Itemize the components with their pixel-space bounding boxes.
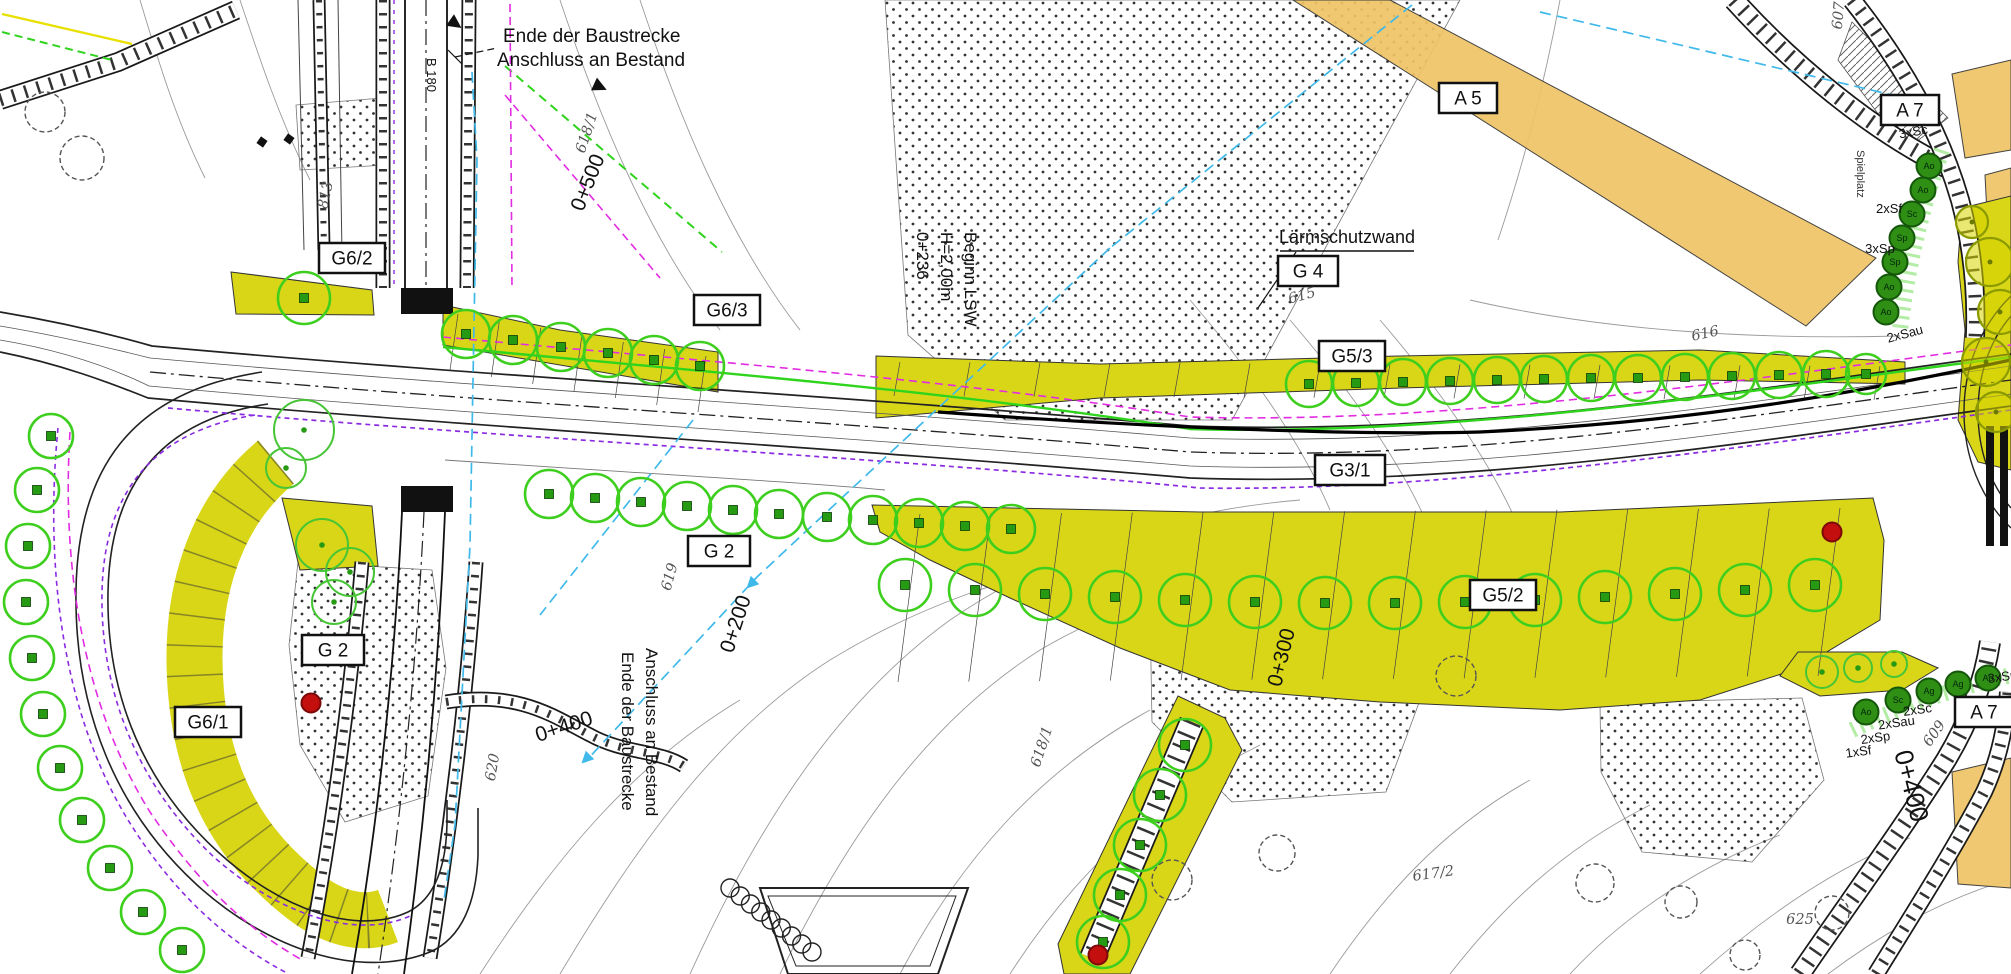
tree-square [1251, 598, 1260, 607]
tree-square [775, 510, 784, 519]
tree-square [24, 542, 33, 551]
label-text: A 5 [1454, 89, 1481, 110]
tree-square [971, 586, 980, 595]
site-plan: AoAoScSpSpAoAoAoScAgAgAo G6/2G6/3G 4G5/3… [0, 0, 2011, 974]
label-text: G6/3 [706, 301, 747, 322]
tree-square [1391, 599, 1400, 608]
label-text: A 7 [1896, 101, 1923, 122]
existing-shrub-symbol [1962, 338, 2010, 386]
tree-square [604, 349, 613, 358]
tree-square [1822, 370, 1831, 379]
planted-tree-tagged: Ao [1917, 154, 1942, 179]
plant-quantity-label: 3xSp [1987, 667, 2011, 686]
tree-square [509, 336, 518, 345]
tree-square [1681, 373, 1690, 382]
fenced-enclosure-inner [768, 896, 956, 966]
tree-symbol [6, 524, 50, 568]
label-text: G6/2 [331, 249, 372, 270]
plant-quantity-label: 1xSf [1844, 742, 1872, 761]
tree-center-dot [1891, 661, 1897, 667]
label-text: A 7 [1970, 703, 1997, 724]
annotation-beginn-lsw: Beginn LSW [961, 232, 980, 327]
area-label-box-g-2: G 2 [302, 635, 364, 665]
drainage-arrow [577, 751, 594, 768]
tree-species-tag: Sp [1896, 233, 1907, 243]
tree-square [1446, 377, 1455, 386]
tree-center-dot [1819, 669, 1825, 675]
planting-area [872, 498, 1884, 710]
annotation-0-236: 0+236 [913, 232, 932, 280]
tree-symbol [29, 414, 73, 458]
tree-symbol [21, 692, 65, 736]
tree-symbol [88, 846, 132, 890]
plant-quantity-label: 2xSau [1885, 322, 1925, 346]
tree-square [1540, 375, 1549, 384]
tree-square [1811, 581, 1820, 590]
parcel-number: 625 [1786, 912, 1814, 928]
tree-square [39, 710, 48, 719]
planted-tree-tagged: Ao [1877, 275, 1902, 300]
bridge-abutment [401, 486, 453, 512]
red-point-marker [302, 694, 321, 713]
tree-symbol [10, 636, 54, 680]
area-label-box-g5-2: G5/2 [1470, 580, 1536, 610]
tree-species-tag: Ao [1880, 307, 1891, 317]
tree-square [557, 343, 566, 352]
tree-square [139, 908, 148, 917]
contour-line [1470, 300, 1900, 337]
label-text: G5/3 [1331, 347, 1372, 368]
tree-symbol [160, 928, 204, 972]
existing-shrub-symbol [1956, 206, 1988, 238]
tree-symbol [525, 470, 573, 518]
label-text: G6/1 [187, 713, 228, 734]
tree-square [106, 864, 115, 873]
existing-tree-blob [1730, 940, 1760, 970]
parcel-number: 617/2 [1412, 863, 1456, 885]
tree-symbol [4, 580, 48, 624]
tree-square [729, 506, 738, 515]
contour-line [1450, 805, 1650, 974]
leader-line [448, 50, 462, 64]
tree-square [56, 764, 65, 773]
tree-species-tag: Ao [1883, 282, 1894, 292]
parcel-number: 616 [1690, 323, 1720, 344]
gravel-stipple-area [1600, 698, 1824, 862]
annotation-l-rmschutzwand: Lärmschutzwand [1279, 227, 1415, 247]
planted-tree-tagged: Ao [1874, 300, 1899, 325]
annotation-ende-der-baustrecke: Ende der Baustrecke [503, 26, 680, 47]
tree-species-tag: Ag [1952, 679, 1963, 689]
tree-square [1741, 586, 1750, 595]
planted-tree-tagged: Ao [1854, 700, 1879, 725]
tree-square [1041, 590, 1050, 599]
planted-tree-tagged: Ao [1911, 178, 1936, 203]
parcel-number: 607 [1830, 0, 1848, 30]
label-text: G 4 [1293, 262, 1324, 283]
tree-square [22, 598, 31, 607]
tree-square [961, 522, 970, 531]
tree-species-tag: Sp [1889, 257, 1900, 267]
annotation-anschluss-an-bestand: Anschluss an Bestand [642, 648, 661, 816]
area-label-box-g6-1: G6/1 [175, 707, 241, 737]
plant-quantity-label: 2xSf [1876, 201, 1902, 216]
area-label-box-a-7: A 7 [1955, 697, 2011, 727]
gravel-stipple-area [296, 98, 386, 170]
area-a-surface [1952, 60, 2011, 158]
existing-shrub-symbol [1976, 392, 2011, 432]
tree-square [300, 294, 309, 303]
parcel-number: 618/1 [1028, 724, 1056, 769]
tree-center-dot [347, 569, 353, 575]
embankment-band-fill [319, 0, 324, 250]
tree-square [823, 513, 832, 522]
planted-tree-tagged: Sc [1900, 202, 1925, 227]
tree-square [1634, 374, 1643, 383]
tree-species-tag: Ag [1923, 686, 1934, 696]
tree-symbol [709, 486, 757, 534]
shrub-center-dot [1988, 260, 1993, 265]
existing-shrub-symbol [1966, 238, 2011, 286]
tree-square [683, 502, 692, 511]
tree-square [1399, 378, 1408, 387]
tree-square [650, 356, 659, 365]
tree-symbol [803, 493, 851, 541]
tree-square [28, 654, 37, 663]
tree-symbol [663, 482, 711, 530]
tree-center-dot [319, 542, 325, 548]
tree-symbol [617, 478, 665, 526]
area-label-box-g5-3: G5/3 [1319, 341, 1385, 371]
chainage-label: 0+200 [716, 592, 756, 655]
existing-tree-blob [1259, 835, 1295, 871]
tree-center-dot [1855, 665, 1861, 671]
area-label-box-a-5: A 5 [1439, 83, 1497, 113]
shrub-center-dot [1970, 220, 1975, 225]
area-label-box-g-4: G 4 [1278, 256, 1338, 286]
plan-line [2, 14, 132, 44]
tree-symbol [60, 798, 104, 842]
contour-line [560, 560, 1100, 974]
parcel-number: 618/1 [573, 110, 601, 155]
tree-species-tag: Sc [1907, 209, 1918, 219]
tree-species-tag: Ao [1917, 185, 1928, 195]
fenced-enclosure-outer [760, 888, 968, 974]
tree-square [1156, 791, 1165, 800]
annotation-ende-der-baustrecke: Ende der Baustrecke [618, 652, 637, 811]
plant-quantity-label: 3xSp [1865, 241, 1895, 256]
tree-square [1862, 370, 1871, 379]
tree-square [462, 330, 471, 339]
tree-square [1181, 596, 1190, 605]
annotation-h-2-00m: H=2,00m [937, 232, 956, 301]
shrub-center-dot [1994, 410, 1999, 415]
red-point-marker [1823, 523, 1842, 542]
tree-square [1181, 741, 1190, 750]
existing-shrub-symbol [1978, 290, 2011, 334]
site-plan-map: AoAoScSpSpAoAoAoScAgAgAo G6/2G6/3G 4G5/3… [0, 0, 2011, 974]
shrub-center-dot [1984, 360, 1989, 365]
label-text: G5/2 [1482, 586, 1523, 607]
road-edge-line [445, 460, 885, 490]
tree-center-dot [331, 599, 337, 605]
shrub-center-dot [1998, 310, 2003, 315]
tree-center-dot [301, 427, 307, 433]
tree-square [1305, 380, 1314, 389]
parcel-number: 619 [659, 562, 682, 593]
tree-square [47, 432, 56, 441]
tree-symbol [755, 490, 803, 538]
tree-square [591, 494, 600, 503]
parcel-number: 620 [483, 752, 504, 782]
survey-point-square [256, 136, 267, 147]
tree-square [1321, 599, 1330, 608]
tree-species-tag: Ao [1923, 161, 1934, 171]
tree-square [869, 516, 878, 525]
annotation-b-180: B 180 [424, 58, 439, 92]
annotation-anschluss-an-bestand: Anschluss an Bestand [497, 50, 685, 71]
area-label-box-g6-3: G6/3 [694, 295, 760, 325]
tree-square [1007, 525, 1016, 534]
tree-square [1352, 379, 1361, 388]
tree-symbol [15, 468, 59, 512]
area-label-box-g3-1: G3/1 [1315, 455, 1385, 485]
tree-square [1136, 841, 1145, 850]
tree-square [545, 490, 554, 499]
tree-species-tag: Ao [1860, 707, 1871, 717]
tree-symbol [571, 474, 619, 522]
planted-tree-tagged: Ag [1946, 672, 1971, 697]
planting-area [1780, 652, 1938, 696]
area-label-box-a-7: A 7 [1881, 95, 1939, 125]
tree-symbol-dotted [274, 400, 334, 460]
tree-square [637, 498, 646, 507]
bridge-abutment [401, 288, 453, 314]
area-label-box-g-2: G 2 [688, 536, 750, 566]
tree-center-dot [283, 465, 289, 471]
label-text: G3/1 [1329, 461, 1370, 482]
tree-square [1728, 372, 1737, 381]
tree-square [1671, 590, 1680, 599]
existing-tree-blob [1576, 864, 1614, 902]
tree-square [78, 816, 87, 825]
chainage-label: 0+500 [566, 151, 609, 214]
plan-line [505, 66, 722, 252]
tree-square [178, 946, 187, 955]
tree-square [696, 362, 705, 371]
chainage-label: 0+400 [1888, 747, 1935, 825]
tree-square [1116, 891, 1125, 900]
bridge-abutment [2000, 426, 2008, 546]
tree-square [1587, 374, 1596, 383]
label-text: G 2 [704, 542, 735, 563]
tree-symbol [38, 746, 82, 790]
tree-symbol [121, 890, 165, 934]
annotation-spielplatz: Spielplatz [1854, 150, 1866, 198]
tree-square [901, 581, 910, 590]
shrub-circle [1978, 290, 2011, 334]
bridge-abutment [1986, 426, 1994, 546]
tree-symbol [879, 559, 931, 611]
label-text: G 2 [318, 641, 349, 662]
tree-square [1461, 598, 1470, 607]
tree-square [1775, 371, 1784, 380]
tree-square [1601, 593, 1610, 602]
tree-square [915, 519, 924, 528]
tree-square [1111, 593, 1120, 602]
tree-square [1493, 376, 1502, 385]
existing-tree-blob [60, 136, 104, 180]
embankment-band-fill [0, 10, 236, 100]
tree-square [33, 486, 42, 495]
red-point-marker [1089, 946, 1108, 965]
area-label-box-g6-2: G6/2 [319, 243, 385, 273]
